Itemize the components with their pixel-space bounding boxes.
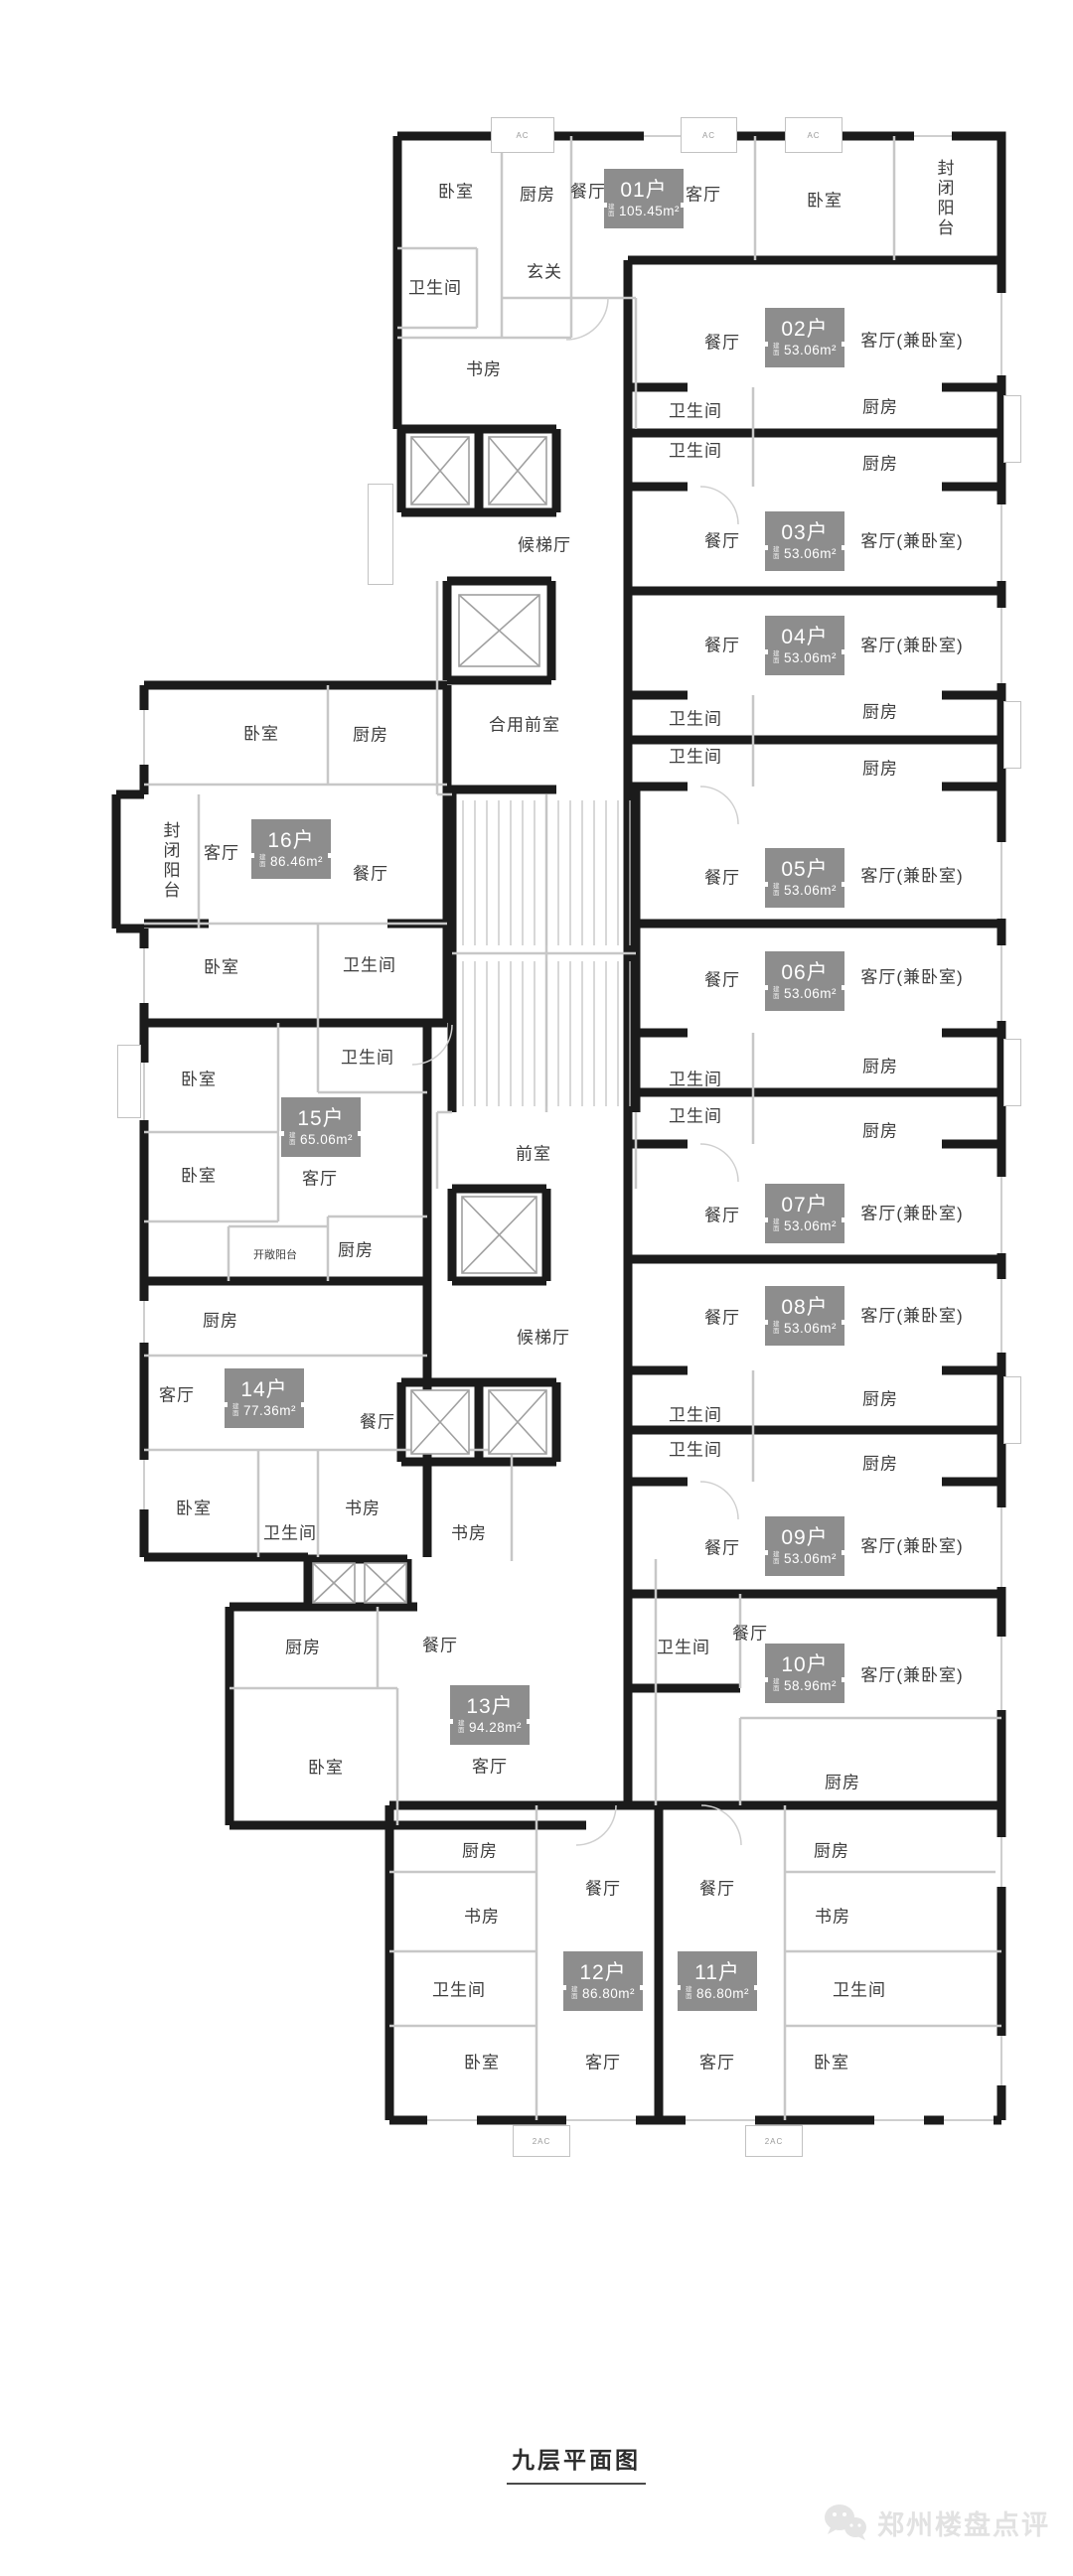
- room-label: 厨房: [862, 1450, 898, 1475]
- unit-number: 01户: [620, 180, 667, 202]
- room-label: 客厅(兼卧室): [860, 963, 963, 988]
- room-label: 客厅: [686, 181, 721, 206]
- unit-number: 16户: [267, 830, 314, 852]
- room-label: 餐厅: [360, 1408, 395, 1433]
- room-label: 餐厅: [585, 1875, 621, 1900]
- room-label: 卫生间: [669, 1436, 722, 1461]
- ac-box: AC: [681, 117, 737, 153]
- unit-area: 53.06m²: [784, 1321, 837, 1336]
- room-label: 卫生间: [408, 274, 462, 299]
- unit-area: 53.06m²: [784, 343, 837, 358]
- room-label: 厨房: [862, 698, 898, 723]
- room-label: 卫生间: [343, 951, 396, 976]
- ac-box: [368, 484, 393, 585]
- wechat-icon: [823, 2503, 868, 2542]
- room-label: 厨房: [862, 1117, 898, 1142]
- room-label: 客厅: [302, 1165, 338, 1190]
- unit-area-prefix: 建面: [773, 883, 781, 897]
- unit-number: 11户: [694, 1962, 740, 1984]
- unit-area: 86.46m²: [270, 854, 323, 869]
- unit-badge: 04户建面53.06m²: [765, 616, 844, 675]
- room-label: 厨房: [285, 1634, 321, 1658]
- unit-area: 58.96m²: [784, 1678, 837, 1693]
- room-label: 厨房: [353, 721, 388, 746]
- unit-badge: 14户建面77.36m²: [225, 1368, 304, 1428]
- room-label: 卧室: [181, 1066, 217, 1090]
- room-label: 客厅(兼卧室): [860, 1302, 963, 1327]
- unit-area: 53.06m²: [784, 1218, 837, 1233]
- unit-area-prefix: 建面: [773, 650, 781, 664]
- unit-area-prefix: 建面: [686, 1986, 693, 2000]
- unit-number: 07户: [781, 1195, 828, 1216]
- unit-area-prefix: 建面: [289, 1132, 297, 1146]
- unit-number: 05户: [781, 859, 828, 881]
- unit-area-prefix: 建面: [773, 1551, 781, 1565]
- unit-number: 02户: [781, 319, 828, 341]
- unit-area-prefix: 建面: [773, 1321, 781, 1335]
- ac-box: 2AC: [513, 2125, 570, 2157]
- unit-area: 94.28m²: [469, 1720, 522, 1735]
- room-label: 餐厅: [704, 864, 740, 889]
- room-label: 厨房: [203, 1307, 238, 1332]
- unit-badge: 07户建面53.06m²: [765, 1184, 844, 1243]
- room-label: 卫生间: [833, 1976, 886, 2001]
- ac-box: AC: [491, 117, 554, 153]
- room-label: 书房: [345, 1495, 381, 1519]
- unit-number: 15户: [297, 1108, 344, 1130]
- unit-area-prefix: 建面: [608, 204, 616, 217]
- unit-area-prefix: 建面: [773, 1678, 781, 1692]
- room-label: 书房: [815, 1903, 850, 1928]
- floor-plan-walls: [0, 0, 1073, 2576]
- unit-number: 04户: [781, 627, 828, 648]
- room-label: 卫生间: [669, 397, 722, 422]
- unit-area: 53.06m²: [784, 883, 837, 898]
- unit-badge: 11户建面86.80m²: [678, 1951, 757, 2011]
- room-label: 餐厅: [704, 527, 740, 552]
- unit-area: 53.06m²: [784, 650, 837, 665]
- unit-number: 10户: [781, 1654, 828, 1676]
- room-label: 卫生间: [669, 743, 722, 768]
- room-label: 客厅(兼卧室): [860, 1661, 963, 1686]
- ac-box: [1003, 1039, 1021, 1106]
- unit-area: 65.06m²: [300, 1132, 353, 1147]
- ac-box: [1003, 701, 1021, 769]
- unit-badge: 16户建面86.46m²: [251, 819, 331, 879]
- unit-area: 86.80m²: [582, 1986, 635, 2001]
- room-label: 厨房: [338, 1236, 374, 1261]
- room-label: 卧室: [814, 2049, 849, 2074]
- room-label: 卫生间: [669, 1066, 722, 1090]
- unit-badge: 13户建面94.28m²: [450, 1685, 530, 1745]
- room-label: 餐厅: [704, 1534, 740, 1559]
- unit-number: 14户: [240, 1379, 287, 1401]
- unit-area-prefix: 建面: [773, 1218, 781, 1232]
- room-label: 书房: [451, 1519, 487, 1544]
- room-label: 厨房: [520, 181, 555, 206]
- room-label: 卧室: [438, 178, 474, 203]
- floor-plan-canvas: 卧室厨房餐厅客厅卧室封闭阳台玄关卫生间书房餐厅客厅(兼卧室)卫生间卫生间厨房厨房…: [0, 0, 1073, 2576]
- room-label: 餐厅: [704, 1202, 740, 1226]
- ac-box: [1003, 1376, 1021, 1444]
- unit-number: 08户: [781, 1297, 828, 1319]
- unit-area-prefix: 建面: [773, 343, 781, 357]
- unit-area-prefix: 建面: [773, 546, 781, 560]
- room-label: 餐厅: [704, 966, 740, 991]
- unit-number: 06户: [781, 962, 828, 984]
- unit-badge: 09户建面53.06m²: [765, 1516, 844, 1576]
- room-label: 卫生间: [669, 705, 722, 730]
- unit-badge: 01户建面105.45m²: [604, 169, 684, 228]
- room-label: 候梯厅: [517, 1324, 570, 1349]
- room-label: 餐厅: [570, 178, 606, 203]
- room-label: 厨房: [862, 1053, 898, 1077]
- room-label: 客厅(兼卧室): [860, 632, 963, 656]
- watermark-text: 郑州楼盘点评: [877, 2504, 1050, 2542]
- room-label: 卫生间: [657, 1634, 710, 1658]
- ac-box: AC: [785, 117, 843, 153]
- room-label: 餐厅: [699, 1875, 735, 1900]
- room-label: 客厅: [204, 839, 239, 864]
- room-label: 候梯厅: [518, 531, 571, 556]
- unit-badge: 15户建面65.06m²: [281, 1097, 361, 1157]
- room-label: 前室: [516, 1140, 551, 1165]
- room-label: 客厅(兼卧室): [860, 527, 963, 552]
- unit-badge: 03户建面53.06m²: [765, 511, 844, 571]
- room-label: 封闭阳台: [932, 159, 957, 238]
- room-label: 封闭阳台: [158, 821, 183, 901]
- room-label: 卫生间: [341, 1044, 394, 1069]
- room-label: 卫生间: [432, 1976, 486, 2001]
- unit-area: 86.80m²: [696, 1986, 749, 2001]
- room-label: 书房: [466, 356, 502, 380]
- unit-badge: 08户建面53.06m²: [765, 1286, 844, 1346]
- room-label: 客厅: [472, 1753, 508, 1778]
- room-label: 厨房: [862, 755, 898, 780]
- room-label: 餐厅: [704, 1304, 740, 1329]
- room-label: 客厅(兼卧室): [860, 327, 963, 352]
- room-label: 卫生间: [669, 1102, 722, 1127]
- unit-area-prefix: 建面: [232, 1403, 240, 1417]
- room-label: 卫生间: [669, 437, 722, 462]
- room-label: 卧室: [807, 187, 843, 212]
- watermark: 郑州楼盘点评: [823, 2503, 1050, 2542]
- unit-badge: 02户建面53.06m²: [765, 308, 844, 367]
- room-label: 厨房: [862, 1385, 898, 1410]
- unit-badge: 05户建面53.06m²: [765, 848, 844, 908]
- room-label: 厨房: [825, 1769, 860, 1793]
- room-label: 厨房: [862, 393, 898, 418]
- room-label: 卫生间: [669, 1401, 722, 1426]
- room-label: 厨房: [862, 450, 898, 475]
- unit-number: 03户: [781, 522, 828, 544]
- plan-title: 九层平面图: [507, 2441, 646, 2485]
- ac-box: [1003, 395, 1021, 463]
- unit-area-prefix: 建面: [458, 1720, 466, 1734]
- room-label: 餐厅: [704, 632, 740, 656]
- room-label: 客厅: [159, 1381, 195, 1406]
- room-label: 卧室: [243, 720, 279, 745]
- room-label: 卫生间: [263, 1519, 317, 1544]
- unit-area: 53.06m²: [784, 546, 837, 561]
- room-label: 厨房: [814, 1837, 849, 1862]
- room-label: 客厅: [585, 2049, 621, 2074]
- unit-area-prefix: 建面: [259, 854, 267, 868]
- room-label: 餐厅: [422, 1632, 458, 1656]
- room-label: 卧室: [464, 2049, 500, 2074]
- room-label: 书房: [464, 1903, 500, 1928]
- unit-badge: 10户建面58.96m²: [765, 1644, 844, 1703]
- unit-area-prefix: 建面: [773, 986, 781, 1000]
- unit-badge: 12户建面86.80m²: [563, 1951, 643, 2011]
- room-label: 餐厅: [353, 860, 388, 885]
- ac-box: 2AC: [745, 2125, 803, 2157]
- room-label: 卧室: [308, 1754, 344, 1779]
- room-label: 餐厅: [732, 1620, 768, 1645]
- unit-number: 12户: [579, 1962, 626, 1984]
- unit-area: 105.45m²: [619, 204, 680, 218]
- room-label: 客厅(兼卧室): [860, 1532, 963, 1557]
- room-label: 客厅(兼卧室): [860, 1200, 963, 1224]
- unit-area: 77.36m²: [243, 1403, 296, 1418]
- room-label: 卧室: [181, 1162, 217, 1187]
- room-label: 客厅(兼卧室): [860, 862, 963, 887]
- unit-area: 53.06m²: [784, 1551, 837, 1566]
- unit-badge: 06户建面53.06m²: [765, 951, 844, 1011]
- unit-area: 53.06m²: [784, 986, 837, 1001]
- unit-number: 13户: [466, 1696, 513, 1718]
- room-label: 卧室: [176, 1495, 212, 1519]
- unit-number: 09户: [781, 1527, 828, 1549]
- room-label: 餐厅: [704, 329, 740, 354]
- room-label: 厨房: [462, 1837, 498, 1862]
- ac-box: [117, 1045, 141, 1118]
- room-label: 开敞阳台: [253, 1246, 297, 1262]
- room-label: 合用前室: [489, 711, 560, 736]
- unit-area-prefix: 建面: [571, 1986, 579, 2000]
- room-label: 卧室: [204, 953, 239, 978]
- room-label: 客厅: [699, 2049, 735, 2074]
- room-label: 玄关: [527, 258, 562, 283]
